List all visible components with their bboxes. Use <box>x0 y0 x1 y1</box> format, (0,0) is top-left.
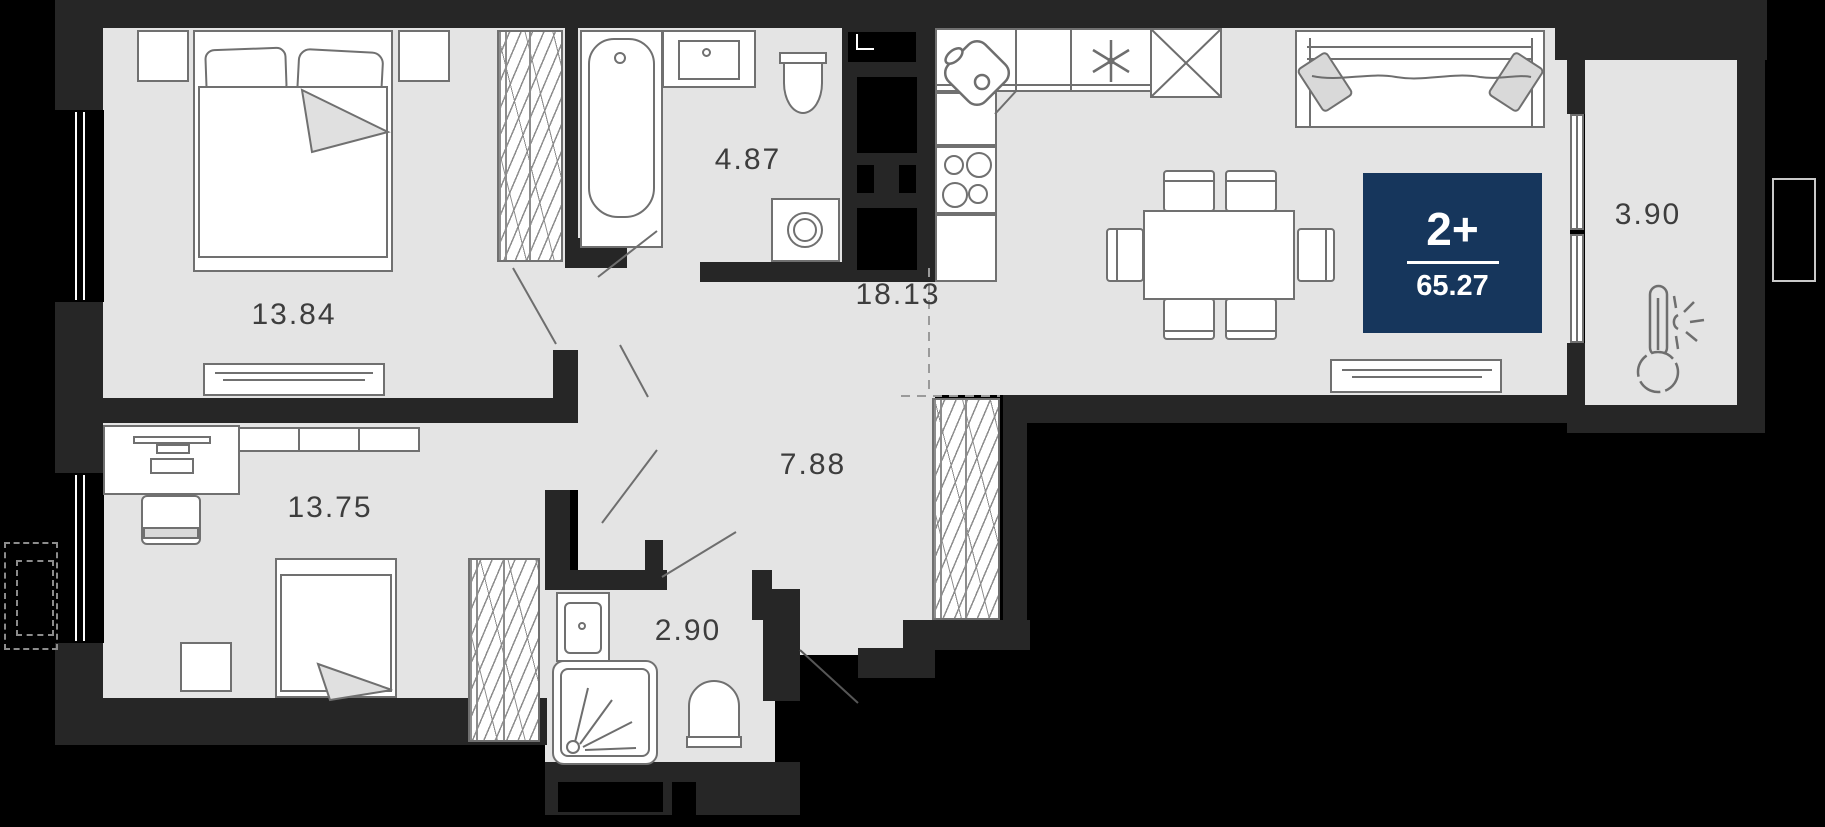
wall-balcony-top <box>1555 0 1767 60</box>
wall-bedroom-divider <box>55 398 578 423</box>
stove-burner <box>942 182 968 208</box>
counter-divider <box>1015 28 1017 92</box>
badge-divider <box>1407 261 1499 264</box>
room-area-bedroom1: 13.84 <box>251 298 336 332</box>
shaft-box-5 <box>857 208 917 270</box>
dresser <box>203 363 385 396</box>
shaft-box-1 <box>848 32 916 62</box>
toilet-tank <box>686 736 742 748</box>
counter-edge <box>935 84 1150 86</box>
bathtub-drain <box>614 52 626 64</box>
room-area-bathroom2: 2.90 <box>655 614 721 648</box>
keyboard <box>150 458 194 474</box>
stove-burner <box>966 152 992 178</box>
nightstand <box>137 30 189 82</box>
stool <box>180 642 232 692</box>
window-mullion <box>83 475 85 641</box>
stove-burner <box>944 155 964 175</box>
room-area-bathroom1: 4.87 <box>715 143 781 177</box>
room-area-balcony: 3.90 <box>1615 198 1681 232</box>
bedroom1-door-gap <box>553 268 578 350</box>
bath2-under-box-1 <box>558 782 663 812</box>
apartment-badge: 2+ 65.27 <box>1363 173 1542 333</box>
desk-chair-seat <box>143 527 199 539</box>
kitchen-counter-cell <box>935 214 997 282</box>
tv-stand-detail <box>1342 369 1492 371</box>
washing-machine-drum-inner <box>793 218 817 242</box>
shaft-box-4 <box>899 165 916 193</box>
wall-bath2-right-lower <box>763 589 800 701</box>
dining-chair <box>1225 298 1277 340</box>
sofa-back-line <box>1307 58 1533 60</box>
monitor-stand <box>156 444 190 454</box>
wall-hall-bottom <box>903 620 1030 650</box>
exterior-feature-rect <box>1772 178 1816 282</box>
exterior-dashed-box-inner <box>16 560 54 636</box>
shower-drain <box>566 740 580 754</box>
wardrobe-bedroom1 <box>497 30 563 262</box>
wall-balcony-right <box>1737 60 1765 405</box>
window-mullion <box>83 112 85 300</box>
wall-bath2-top <box>545 570 667 590</box>
dining-table <box>1143 210 1295 300</box>
shelf-divider <box>358 429 360 450</box>
wall-bath1-left <box>565 28 578 240</box>
bathroom1-sink-basin <box>678 40 740 80</box>
balcony-glazing-lower <box>1570 234 1584 343</box>
wall-balcony-left-stub-top <box>1567 60 1585 114</box>
single-bed-blanket <box>280 574 392 692</box>
dresser-detail <box>223 379 365 381</box>
dining-chair <box>1225 170 1277 212</box>
balcony-glazing-upper <box>1570 114 1584 230</box>
wall-bath2-stub <box>645 540 663 572</box>
bathtub-inner <box>588 38 655 218</box>
glazing-line <box>1576 116 1578 228</box>
window-mullion <box>75 475 77 641</box>
bathroom2-door-gap <box>663 570 753 592</box>
room-area-living-kitchen: 18.13 <box>855 278 940 312</box>
sofa-back-line <box>1307 46 1533 48</box>
wall-bedroom2-right <box>545 490 570 570</box>
room-area-hall: 7.88 <box>780 448 846 482</box>
room-area-bedroom2: 13.75 <box>287 491 372 525</box>
monitor <box>133 436 211 444</box>
chair-back-line <box>1116 230 1118 280</box>
bed-blanket <box>198 86 388 258</box>
wall-living-bottom <box>1003 395 1570 423</box>
wall-entry <box>858 648 935 678</box>
door-swing-entry <box>800 650 858 703</box>
dining-chair <box>1297 228 1335 282</box>
shaft-glyph-h <box>856 48 874 50</box>
bath2-under-box-2 <box>672 782 696 815</box>
entry-floor <box>790 615 862 655</box>
bedroom2-door-gap <box>545 423 578 490</box>
window-mullion <box>75 112 77 300</box>
chair-back-line <box>1165 180 1213 182</box>
badge-total-area: 65.27 <box>1416 272 1489 301</box>
shaft-box-2 <box>857 77 917 153</box>
wall-shelf <box>238 427 420 452</box>
chair-back-line <box>1165 330 1213 332</box>
balcony-floor <box>1585 60 1737 405</box>
wardrobe-hall <box>932 398 1000 620</box>
dining-chair <box>1163 298 1215 340</box>
tv-stand-detail <box>1352 376 1482 378</box>
wall-balcony-left-stub-bottom <box>1567 343 1585 405</box>
wall-balcony-bottom <box>1567 405 1765 433</box>
dining-chair <box>1106 228 1144 282</box>
chair-back-line <box>1325 230 1327 280</box>
sink-drain <box>578 622 586 630</box>
chair-back-line <box>1227 330 1275 332</box>
toilet-bowl <box>688 680 740 740</box>
wall-hall-right-vertical <box>1003 423 1027 620</box>
sink-drain <box>702 48 711 57</box>
window-bedroom2 <box>55 473 104 643</box>
shaft-box-3 <box>857 165 874 193</box>
wall-bed1-door-stub <box>553 350 578 398</box>
glazing-line <box>1576 236 1578 341</box>
tv-stand <box>1330 359 1502 393</box>
stove-burner <box>968 184 988 204</box>
wall-top <box>55 0 1572 28</box>
kitchen-unit-x <box>1150 28 1222 98</box>
wall-bath1-bottom-right <box>700 262 842 282</box>
dresser-detail <box>215 372 373 374</box>
counter-divider <box>1070 28 1072 92</box>
wardrobe-bedroom2 <box>468 558 540 742</box>
window-bedroom1 <box>55 110 104 302</box>
nightstand <box>398 30 450 82</box>
dining-chair <box>1163 170 1215 212</box>
shelf-divider <box>298 429 300 450</box>
chair-back-line <box>1227 180 1275 182</box>
kitchen-counter-cell <box>935 92 997 146</box>
badge-rooms-count: 2+ <box>1426 205 1478 253</box>
floor-plan: 13.84 4.87 18.13 7.88 13.75 2.90 3.90 2+… <box>0 0 1825 827</box>
